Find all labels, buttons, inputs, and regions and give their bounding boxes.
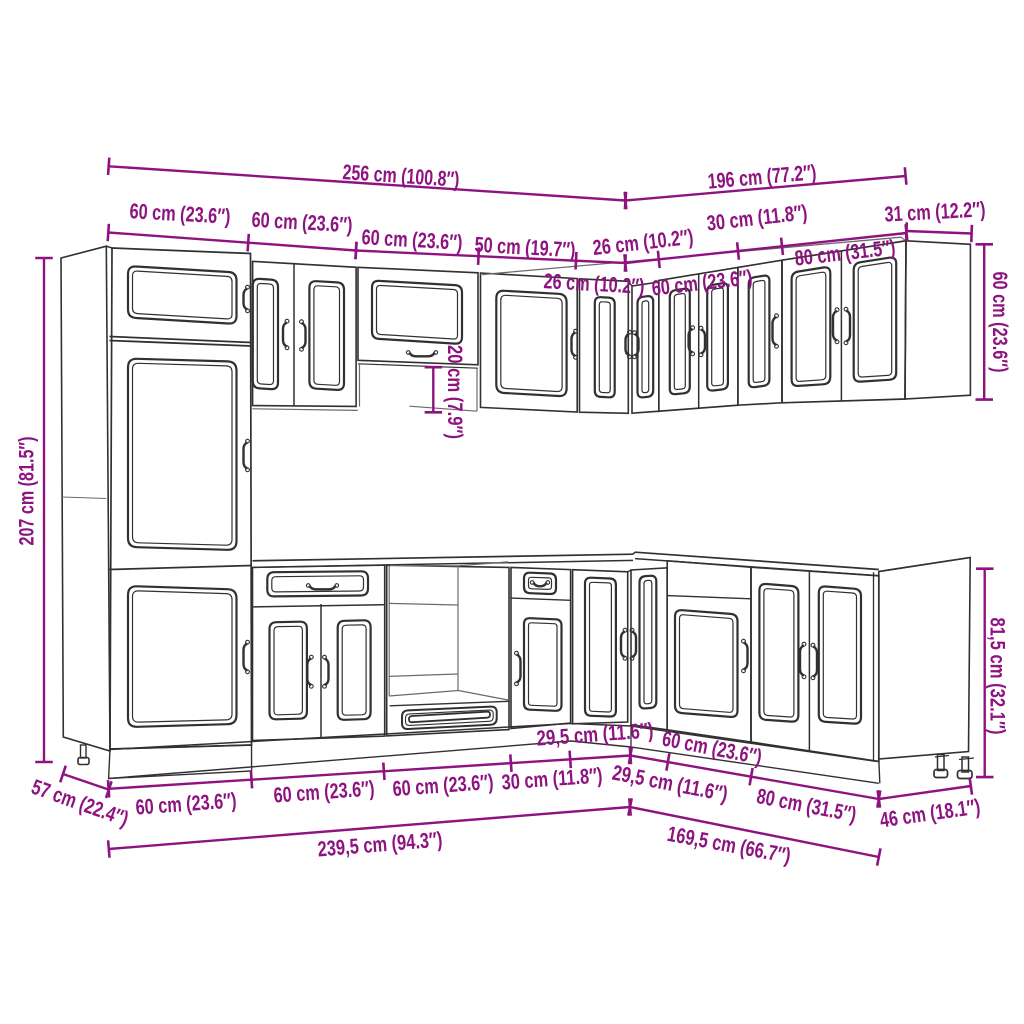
- svg-text:207 cm (81.5″): 207 cm (81.5″): [15, 437, 39, 546]
- svg-text:81,5 cm (32.1″): 81,5 cm (32.1″): [986, 618, 1010, 735]
- svg-text:20 cm (7.9″): 20 cm (7.9″): [443, 345, 467, 439]
- svg-text:60 cm (23.6″): 60 cm (23.6″): [988, 272, 1012, 373]
